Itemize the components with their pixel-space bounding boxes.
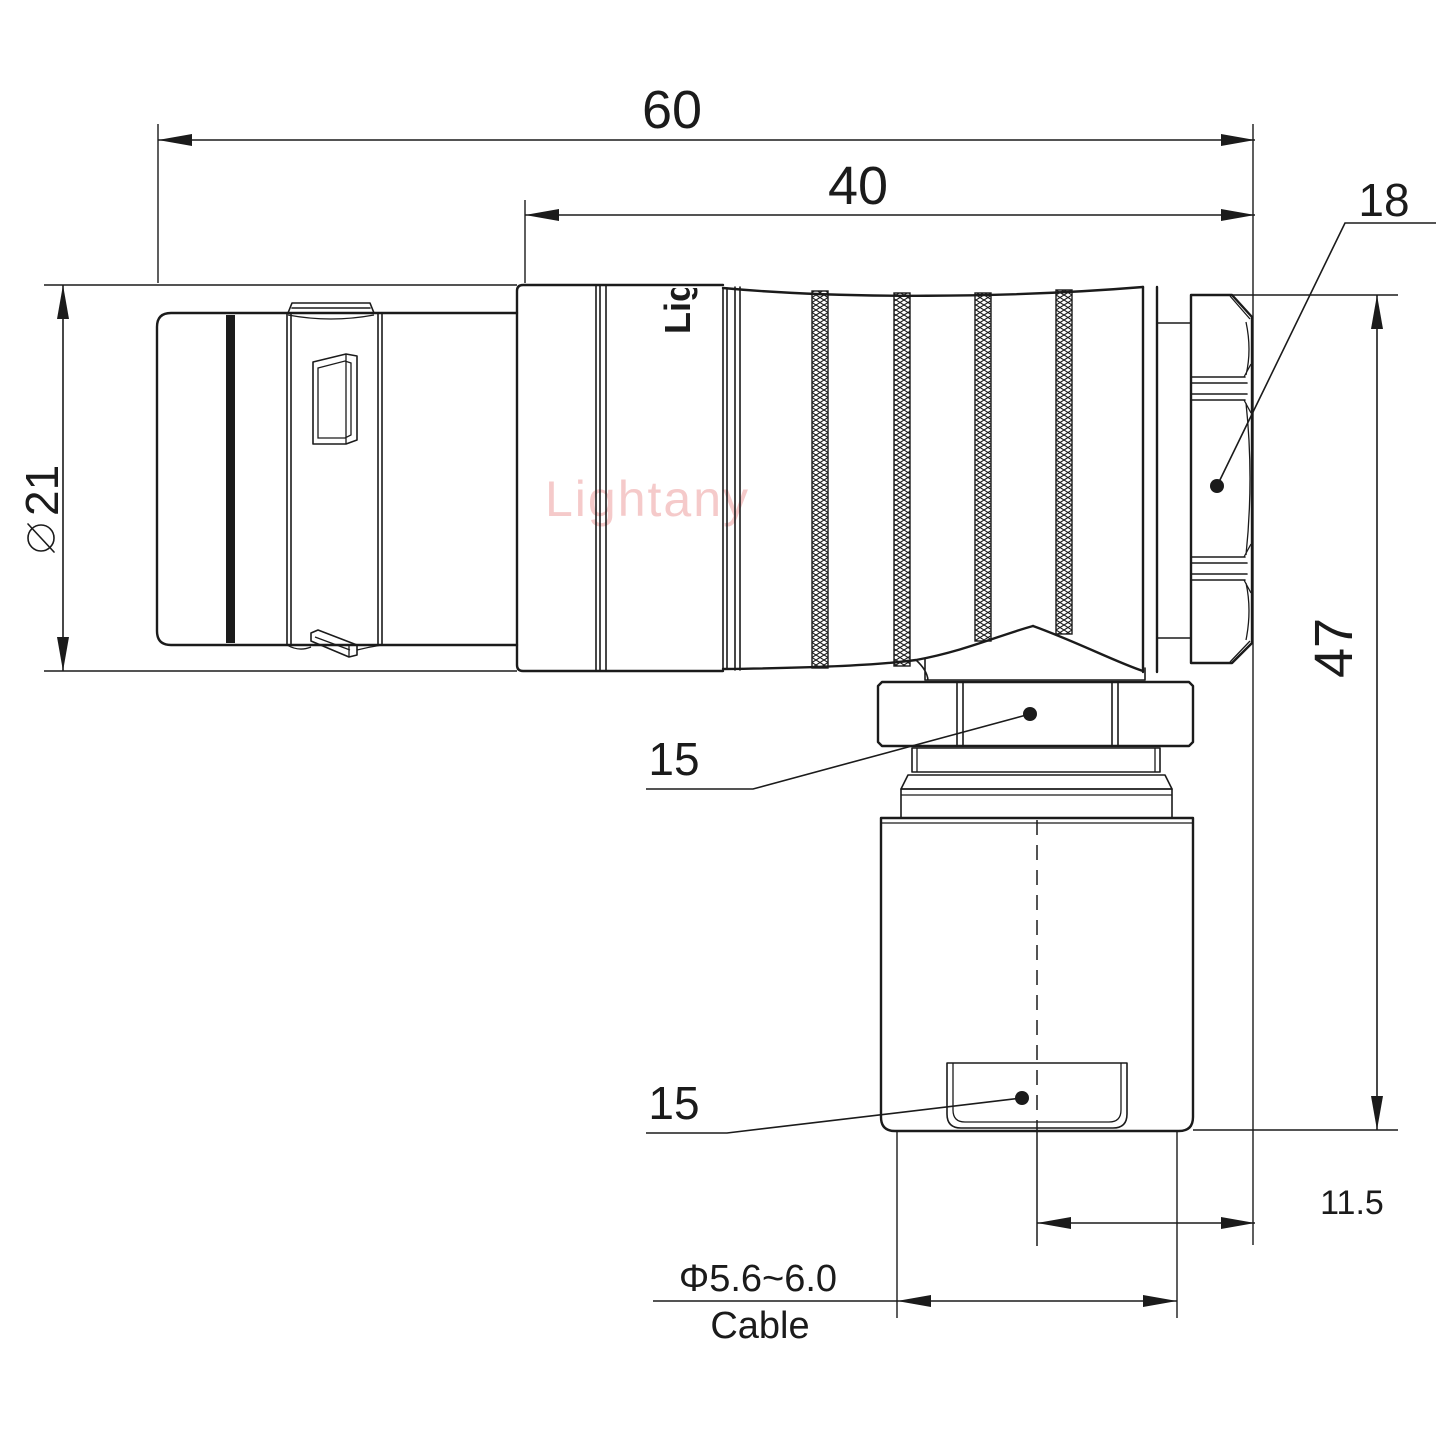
dim-cable-offset: 11.5: [1037, 1184, 1384, 1229]
knurl-band: [975, 293, 991, 641]
front-coupling-sleeve: [157, 303, 517, 657]
dim-front-diameter-value: 21: [16, 465, 68, 516]
part-marking-text: Lig: [657, 280, 698, 334]
watermark-text: Lightany: [545, 471, 750, 527]
latch-plate: [288, 303, 374, 313]
dim-backnut-leader: 18: [1210, 174, 1436, 493]
latch-window: [313, 354, 357, 444]
elbow-junction: [916, 323, 1191, 680]
dim-backnut-value: 18: [1358, 174, 1409, 226]
dim-overall-length-value: 60: [642, 80, 702, 140]
knurl-band: [1056, 290, 1072, 634]
knurl-band: [812, 291, 828, 668]
rear-back-nut: [1191, 295, 1252, 663]
dim-cable-clamp-value: 15: [648, 1077, 699, 1129]
gland-transition-rings: [901, 748, 1172, 818]
dim-overall-length: 60: [158, 80, 1255, 1245]
knurled-grip-section: [723, 287, 1157, 672]
latch-bottom-tab: [287, 630, 382, 657]
dim-cable-diameter-value: Φ5.6~6.0: [679, 1258, 837, 1300]
technical-drawing-page: Lightany Lig: [0, 0, 1440, 1440]
connector-dimension-drawing: Lightany Lig: [0, 0, 1440, 1440]
dim-cable-offset-value: 11.5: [1320, 1184, 1384, 1222]
dim-coupling-nut-value: 15: [648, 733, 699, 785]
sleeve-seam-band: [226, 315, 235, 643]
dim-cable-diameter: Φ5.6~6.0 Cable: [653, 1131, 1177, 1347]
dim-front-diameter: 21: [16, 285, 517, 671]
dim-body-length: 40: [525, 156, 1255, 283]
dim-body-length-value: 40: [828, 156, 888, 216]
dim-height: 47: [1191, 295, 1398, 1130]
diameter-symbol-icon: [28, 524, 54, 552]
knurl-band: [894, 293, 910, 666]
dim-cable-caption: Cable: [710, 1305, 809, 1347]
dim-height-value: 47: [1304, 618, 1364, 678]
dim-cable-clamp-leader: 15: [646, 1077, 1029, 1133]
